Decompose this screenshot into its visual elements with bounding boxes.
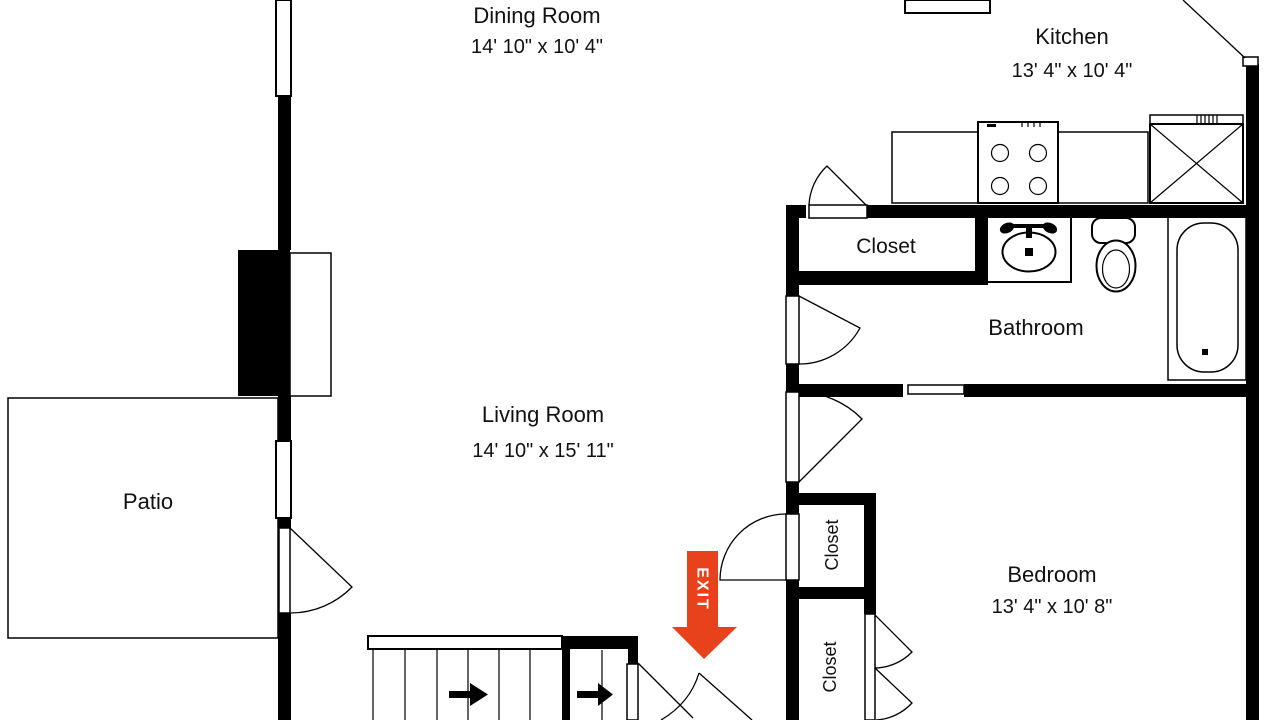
closet-bifold-leaf [865,614,875,720]
wall-segment [278,95,291,250]
kitchen-door-leaf [1243,57,1258,66]
fireplace-block [238,250,290,396]
door-swing [799,392,862,482]
exit-label: EXIT [694,567,711,611]
stair-direction-arrow [577,691,598,698]
stair-wall [628,649,638,664]
closet-wall [798,493,874,505]
living-room-dims: 14' 10" x 15' 11" [472,440,614,462]
stove-control [987,124,996,127]
closet-wall [864,493,876,599]
wall-segment [1246,64,1259,720]
door-swing [1183,0,1245,58]
closet-door-leaf [786,514,799,580]
kitchen-dims: 13' 4" x 10' 4" [1012,60,1133,82]
pocket-door-leaf [908,385,964,394]
toilet-tank [1092,218,1135,243]
stair-wall [562,649,570,720]
bedroom-door-leaf [786,392,799,482]
bifold-door-swing [875,615,912,668]
wall-segment [278,613,291,720]
wall-segment [786,205,799,296]
wall-segment [786,482,799,514]
dining-room-label: Dining Room [473,3,600,28]
bifold-door-swing [875,668,912,720]
closet-label: Closet [856,235,916,258]
door-swing [290,528,352,613]
wall-segment [278,396,291,442]
sink-drain [1025,248,1033,256]
closet-wall [798,587,876,599]
window [276,441,291,518]
door-swing [699,673,752,720]
floor-plan: EXIT Dining Room 14' 10" x 10' 4" Kitche… [0,0,1280,720]
stair-direction-arrow [470,683,488,706]
wall-segment [786,580,799,720]
door-swing [809,166,866,205]
bedroom-label: Bedroom [1007,562,1096,587]
bedroom-dims: 13' 4" x 10' 8" [992,596,1113,618]
bathroom-label: Bathroom [988,315,1083,340]
stair-direction-arrow [598,683,613,706]
patio-door-leaf [279,528,290,613]
door-swing [799,296,860,364]
window [276,0,291,96]
closet-upper-label: Closet [822,519,842,570]
patio-label: Patio [123,489,173,514]
door-swing [661,673,699,720]
bathroom-hall-door-leaf [786,296,799,364]
wall-segment [798,271,988,285]
dining-room-dims: 14' 10" x 10' 4" [471,36,603,58]
stair-direction-arrow [449,691,470,698]
fireplace-hearth [290,253,331,396]
closet-door-leaf [809,205,867,218]
closet-wall [864,599,876,614]
living-room-label: Living Room [482,402,604,427]
door-swing [638,663,693,718]
door-swing [720,514,786,580]
stove [978,122,1058,203]
stair-wall [562,636,638,649]
wall-segment [786,364,799,392]
patio-outline [8,398,278,638]
floor-plan-canvas: EXIT Dining Room 14' 10" x 10' 4" Kitche… [0,0,1280,720]
wall-segment [866,205,1258,218]
wall-segment [798,384,903,397]
closet-lower-label: Closet [820,641,840,692]
kitchen-label: Kitchen [1035,24,1108,49]
wall-segment [964,384,1246,397]
bathtub-drain [1202,349,1208,355]
range-hood-cabinet [905,0,990,13]
stair-stringer [368,636,562,649]
entry-door-leaf [627,664,638,720]
sink-faucet [1026,224,1032,238]
